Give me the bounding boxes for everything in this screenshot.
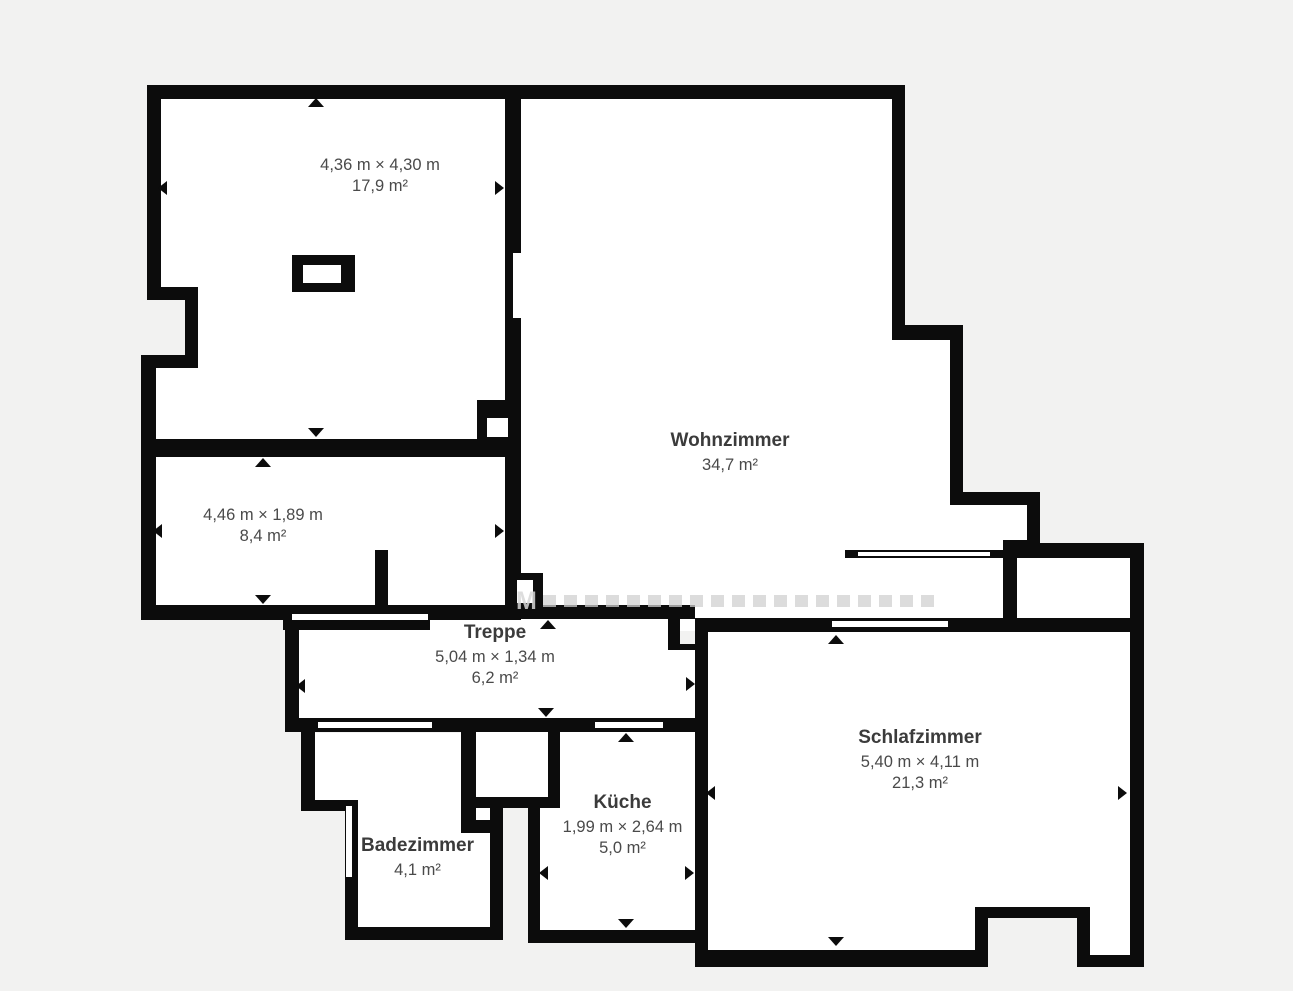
room-name: Küche — [510, 791, 735, 815]
room-name: Wohnzimmer — [605, 429, 855, 453]
room-fill-corridor — [315, 733, 461, 808]
room-fill-alcove — [1017, 558, 1130, 618]
door-opening — [513, 253, 521, 318]
room-dimensions: 5,04 m × 1,34 m — [370, 647, 620, 668]
wall-segment — [548, 732, 560, 797]
arrow-down-icon — [618, 919, 634, 928]
wall-segment — [147, 85, 905, 99]
arrow-down-icon — [308, 428, 324, 437]
arrow-left-icon — [296, 679, 305, 693]
room-dimensions: 4,46 m × 1,89 m — [138, 505, 388, 526]
wall-segment — [950, 325, 963, 505]
room-fill-schlafzimmer-br — [1090, 907, 1130, 955]
room-dimensions: 4,36 m × 4,30 m — [255, 155, 505, 176]
room-label-treppe: Treppe 5,04 m × 1,34 m 6,2 m² — [370, 621, 620, 689]
wall-segment — [141, 439, 521, 457]
wall-segment — [528, 930, 708, 943]
arrow-left-icon — [158, 181, 167, 195]
window-opening — [595, 722, 663, 728]
room-name: Badezimmer — [305, 834, 530, 858]
room-label-mid-left: 4,46 m × 1,89 m 8,4 m² — [138, 505, 388, 547]
room-dimensions: 5,40 m × 4,11 m — [795, 752, 1045, 773]
exterior-notch — [140, 300, 185, 355]
window-opening — [858, 552, 990, 556]
wall-segment — [1090, 955, 1144, 967]
window-opening — [832, 621, 948, 627]
room-name: Treppe — [370, 621, 620, 645]
room-label-top-left: 4,36 m × 4,30 m 17,9 m² — [255, 155, 505, 197]
room-area: 4,1 m² — [305, 860, 530, 881]
arrow-down-icon — [538, 708, 554, 717]
wall-segment — [975, 907, 1090, 918]
arrow-down-icon — [255, 595, 271, 604]
wall-segment — [285, 618, 299, 732]
wall-segment — [301, 800, 348, 811]
arrow-down-icon — [828, 937, 844, 946]
wall-stub — [668, 644, 708, 650]
wall-stub — [375, 550, 388, 607]
chimney-opening — [303, 265, 341, 283]
room-label-badezimmer: Badezimmer 4,1 m² — [305, 834, 530, 881]
room-label-wohnzimmer: Wohnzimmer 34,7 m² — [605, 429, 855, 476]
wall-segment — [695, 950, 988, 967]
arrow-right-icon — [1118, 786, 1127, 800]
arrow-left-icon — [539, 866, 548, 880]
floor-plan: 4,36 m × 4,30 m 17,9 m² Wohnzimmer 34,7 … — [0, 0, 1293, 991]
arrow-up-icon — [828, 635, 844, 644]
room-label-kueche: Küche 1,99 m × 2,64 m 5,0 m² — [510, 791, 735, 859]
room-label-schlafzimmer: Schlafzimmer 5,40 m × 4,11 m 21,3 m² — [795, 726, 1045, 794]
room-dimensions: 1,99 m × 2,64 m — [510, 817, 735, 838]
arrow-right-icon — [495, 524, 504, 538]
shaft-opening — [487, 418, 508, 437]
room-area: 6,2 m² — [370, 668, 620, 689]
wall-stub — [668, 605, 680, 644]
room-area: 34,7 m² — [605, 455, 855, 476]
room-fill-wohnzimmer-right — [695, 99, 892, 618]
wall-segment — [1130, 543, 1144, 967]
room-area: 17,9 m² — [255, 176, 505, 197]
arrow-right-icon — [685, 866, 694, 880]
wall-segment — [1003, 543, 1144, 558]
arrow-up-icon — [255, 458, 271, 467]
shaft-opening — [517, 580, 533, 603]
room-area: 5,0 m² — [510, 838, 735, 859]
wall-segment — [345, 927, 503, 940]
window-opening — [318, 722, 432, 728]
wall-segment — [1077, 912, 1090, 967]
exterior-notch — [680, 631, 695, 645]
window-opening — [292, 614, 428, 620]
arrow-up-icon — [308, 98, 324, 107]
room-area: 8,4 m² — [138, 526, 388, 547]
arrow-up-icon — [618, 733, 634, 742]
room-name: Schlafzimmer — [795, 726, 1045, 750]
wall-segment — [892, 85, 905, 340]
arrow-right-icon — [686, 677, 695, 691]
room-fill-wohnzimmer-ext-a — [892, 340, 950, 618]
wall-segment — [141, 355, 156, 620]
room-area: 21,3 m² — [795, 773, 1045, 794]
wall-segment — [461, 732, 476, 833]
